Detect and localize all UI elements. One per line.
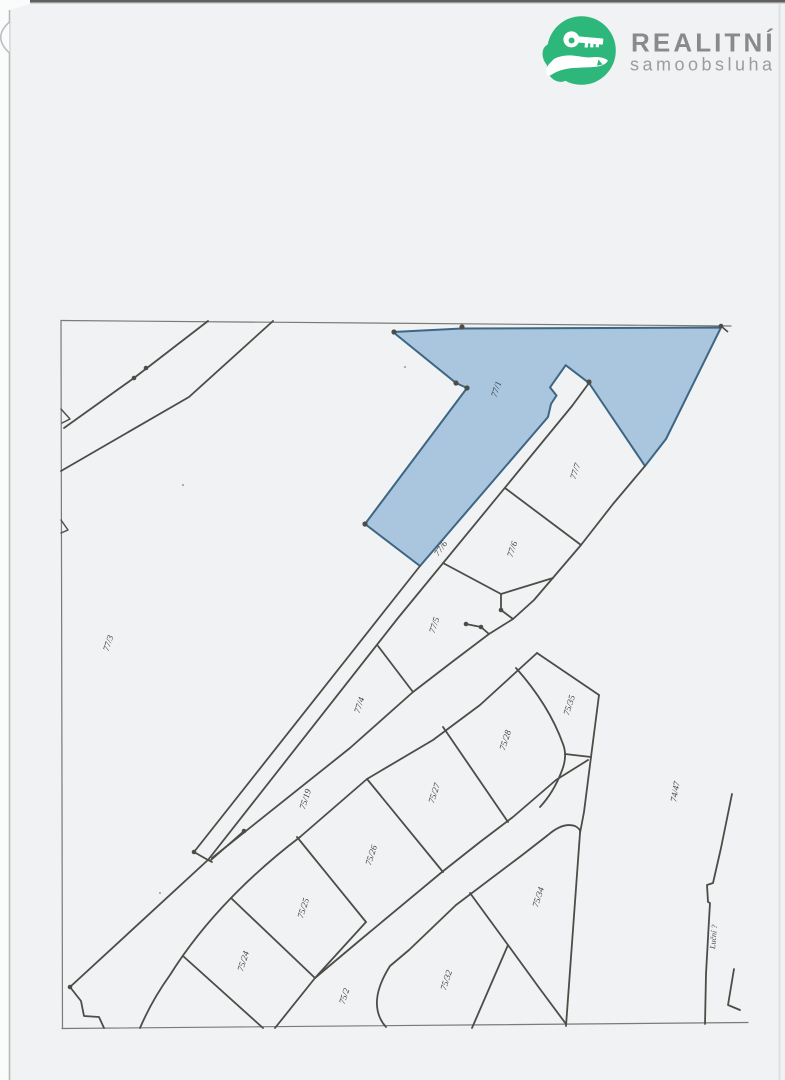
svg-text:samoobsluha: samoobsluha	[630, 55, 776, 75]
svg-text:REALITNÍ: REALITNÍ	[631, 28, 776, 58]
